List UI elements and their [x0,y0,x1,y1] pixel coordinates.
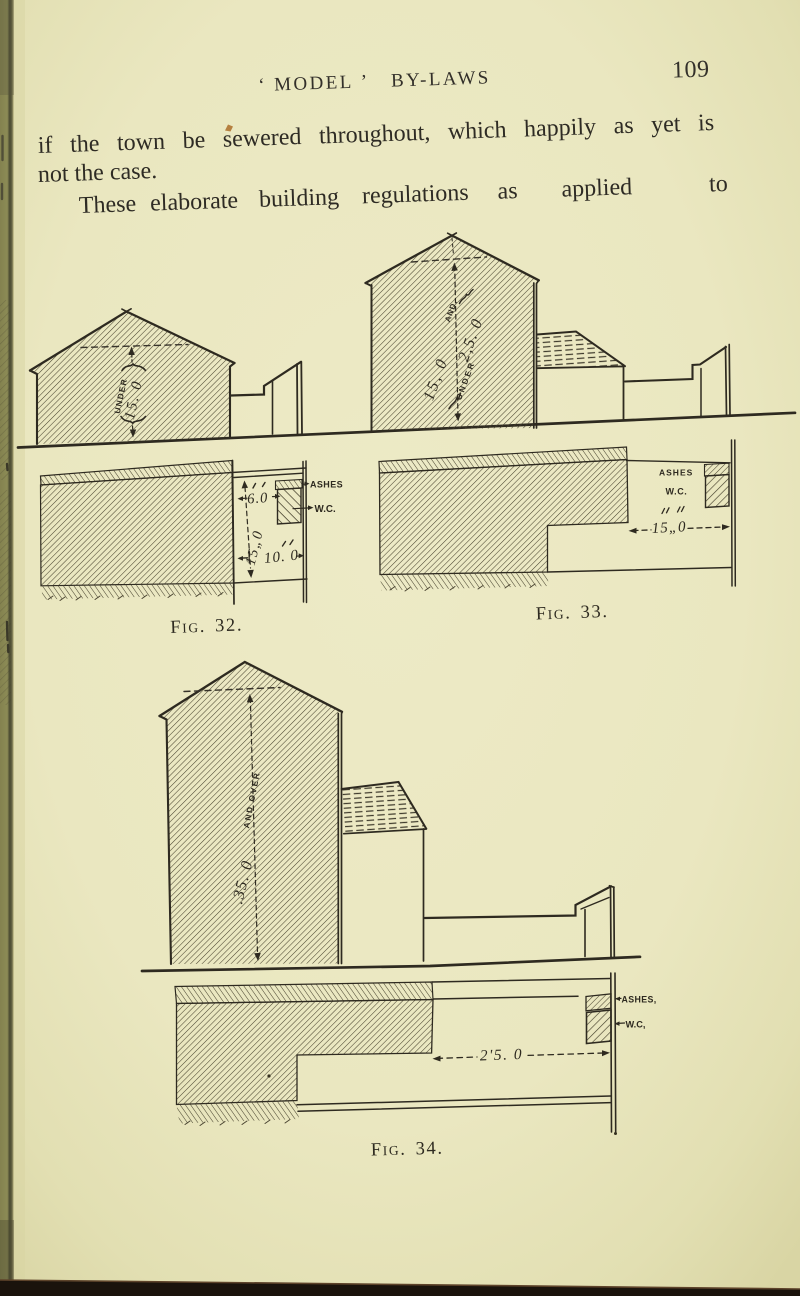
svg-text:ASHES: ASHES [310,480,343,490]
svg-text:6.0: 6.0 [247,490,269,507]
svg-text:15„0: 15„0 [651,519,687,537]
svg-text:W.C.: W.C. [666,487,688,497]
svg-text:ASHES: ASHES [659,468,693,478]
svg-text:2'5. 0: 2'5. 0 [480,1046,524,1065]
svg-text:W.C.: W.C. [315,504,337,515]
svg-text:W.C,: W.C, [626,1020,646,1030]
svg-text:ASHES,: ASHES, [622,995,657,1005]
